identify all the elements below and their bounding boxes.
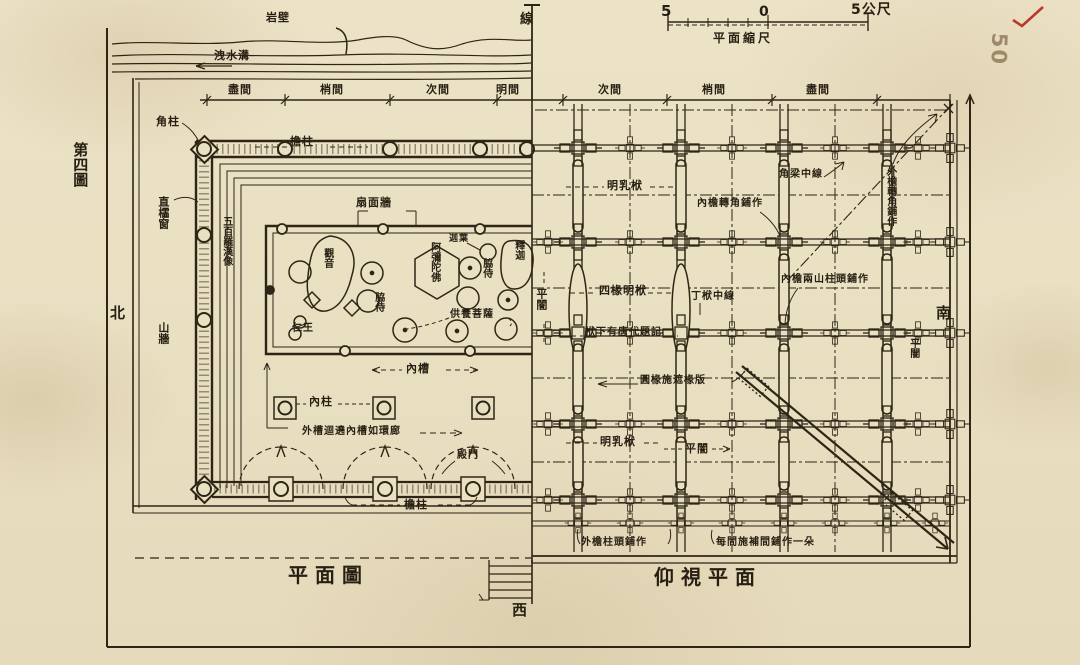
bay-right-cijian: 次間 (598, 84, 622, 96)
floor-plan-title: 平面圖 (288, 565, 369, 587)
label-attendant-right: 脇侍 (480, 258, 491, 278)
compass-north: 北 (110, 305, 126, 321)
compass-west: 西 (512, 602, 528, 618)
label-pingan-bottom: 平闇 (685, 443, 709, 455)
bay-left-shaojian: 梢間 (320, 84, 344, 96)
bay-right-jinjian: 盡間 (806, 84, 830, 96)
ceiling-plan-title: 仰視平面 (654, 567, 762, 589)
label-rafter-board: 圓椽施遮椽版 (640, 376, 706, 387)
label-eave-column-top: 檐柱 (290, 136, 314, 148)
label-intermediate-puzuo: 每間施補間鋪作一朵 (716, 538, 815, 549)
center-line-label: 線 (520, 13, 534, 27)
scale-zero-value: 0 (759, 5, 770, 20)
annotation-layer: 第四圖 北 南 西 線 5 0 5公尺 平面縮尺 平面圖 仰視平面 50 岩壁洩… (0, 0, 1080, 665)
label-attendant-mid: 脇侍 (372, 292, 383, 312)
scale-right-value: 5公尺 (851, 3, 892, 18)
label-pingan-right: 平闇 (907, 338, 918, 358)
label-outer-eave-column-puzuo: 外檐柱頭鋪作 (581, 538, 647, 549)
label-mingrufu-bottom: 明乳栿 (600, 436, 636, 448)
bay-mingjian: 明間 (496, 84, 520, 96)
label-tang-inscription: 栿下有唐代題記 (585, 328, 662, 339)
label-corner-column: 角柱 (156, 116, 180, 128)
label-corner-beam-centerline: 角梁中線 (779, 170, 823, 181)
label-amitabha: 阿彌陀佛 (428, 242, 439, 282)
bay-left-cijian: 次間 (426, 84, 450, 96)
label-outer-cao-corridor: 外槽迴遶內槽如環廊 (302, 427, 401, 438)
label-inner-cao: 內槽 (406, 363, 430, 375)
label-jiaye: 迦葉 (449, 235, 469, 245)
label-500-luohan: 五百羅漢像 (220, 216, 231, 266)
label-dingfu-centerline: 丁栿中線 (691, 292, 735, 303)
label-renwang: 仁王 (292, 324, 314, 335)
label-mingrufu-top: 明乳栿 (607, 180, 643, 192)
drawing-page: 第四圖 北 南 西 線 5 0 5公尺 平面縮尺 平面圖 仰視平面 50 岩壁洩… (0, 0, 1080, 665)
label-inner-eave-gable-puzuo: 內檐兩山柱頭鋪作 (781, 275, 869, 286)
label-four-rafter-beam: 四椽明栿 (599, 285, 647, 297)
bay-right-shaojian: 梢間 (702, 84, 726, 96)
scale-caption: 平面縮尺 (713, 32, 773, 45)
label-guanyin: 觀音 (321, 248, 332, 268)
label-pingan-left: 平闇 (535, 288, 547, 310)
label-gable-wall: 山牆 (157, 322, 169, 344)
label-fan-wall: 扇面牆 (356, 197, 392, 209)
label-lattice-window: 直櫺窗 (157, 196, 169, 229)
label-inner-column: 內柱 (309, 396, 333, 408)
bay-left-jinjian: 盡間 (228, 84, 252, 96)
label-hall-door: 殿門 (457, 451, 479, 462)
compass-south: 南 (936, 305, 952, 321)
label-drainage-ditch: 洩水溝 (214, 50, 250, 62)
figure-number: 第四圖 (72, 142, 88, 187)
scale-left-value: 5 (661, 3, 672, 19)
label-eave-column-bottom: 檐柱 (404, 499, 428, 511)
label-offering-bodhisattva: 供養菩薩 (450, 310, 494, 321)
label-rock-cliff: 岩壁 (266, 12, 290, 24)
label-outer-eave-corner-puzuo: 外檐轉角鋪作 (884, 166, 895, 226)
label-inner-eave-corner-puzuo: 內檐轉角鋪作 (697, 199, 763, 210)
page-number: 50 (987, 32, 1011, 66)
label-shijia: 釋迦 (512, 240, 523, 260)
